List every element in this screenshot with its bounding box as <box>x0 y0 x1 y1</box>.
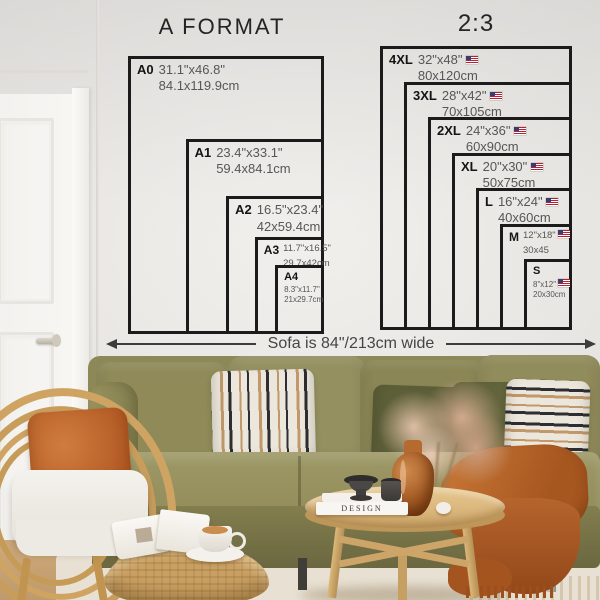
size-name: 3XL <box>413 88 437 104</box>
size-cm: 21x29.7cm <box>284 295 323 305</box>
a-format-title: A FORMAT <box>112 14 332 40</box>
size-label: 4XL32"x48" 80x120cm <box>389 52 478 85</box>
size-cm: 30x45 <box>523 245 570 257</box>
dimension-line-right <box>446 343 585 345</box>
size-label: M12"x18" 30x45 <box>509 230 570 257</box>
size-name: A4 <box>284 271 298 283</box>
size-name: L <box>485 194 493 210</box>
poster-size-guide-image: DESIGN A FORMAT 2:3 A031.1"x46.8"84.1x11… <box>0 0 600 600</box>
size-inches: 24"x36" <box>466 123 526 139</box>
dimension-line-left <box>117 343 256 345</box>
size-label: A48.3"x11.7"21x29.7cm <box>284 271 323 306</box>
size-name: A1 <box>195 145 212 161</box>
coffee-surface <box>202 526 228 534</box>
book-spine-title: DESIGN <box>341 504 382 513</box>
size-name: XL <box>461 159 478 175</box>
open-book-photo <box>135 527 153 543</box>
size-inches: 16.5"x23.4" <box>257 202 323 218</box>
door-panel-upper <box>0 118 54 304</box>
door-handle-base <box>52 334 61 347</box>
size-name: 2XL <box>437 123 461 139</box>
sofa-width-dimension: Sofa is 84"/213cm wide <box>106 335 596 353</box>
size-rect-s: S8"x12" 20x30cm <box>524 259 572 330</box>
pedestal-bowl-foot <box>350 495 372 501</box>
us-flag-icon <box>546 198 558 206</box>
us-flag-icon <box>514 127 526 135</box>
wall-molding <box>96 0 99 366</box>
decor-egg <box>436 502 451 514</box>
a-format-diagram: A031.1"x46.8"84.1x119.9cmA123.4"x33.1"59… <box>128 56 324 334</box>
size-inches: 28"x42" <box>442 88 502 104</box>
arrow-right-icon <box>585 339 596 349</box>
size-cm: 59.4x84.1cm <box>216 161 290 177</box>
size-cm: 84.1x119.9cm <box>159 78 240 94</box>
size-inches: 8.3"x11.7" <box>284 285 323 295</box>
ratio-2-3-title: 2:3 <box>380 10 572 38</box>
arrow-left-icon <box>106 339 117 349</box>
sofa-width-label: Sofa is 84"/213cm wide <box>256 335 447 353</box>
size-name: S <box>533 265 540 277</box>
ratio-2-3-diagram: 4XL32"x48" 80x120cm3XL28"x42" 70x105cm2X… <box>380 46 572 330</box>
wall-molding-top <box>0 70 88 73</box>
us-flag-icon <box>490 92 502 100</box>
size-label: S8"x12" 20x30cm <box>533 265 570 301</box>
design-book: DESIGN <box>316 502 408 515</box>
us-flag-icon <box>558 230 570 238</box>
size-label: L16"x24" 40x60cm <box>485 194 558 227</box>
size-label: A123.4"x33.1"59.4x84.1cm <box>195 145 291 178</box>
dark-cup <box>381 481 401 501</box>
size-name: M <box>509 230 519 245</box>
size-inches: 16"x24" <box>498 194 558 210</box>
size-cm: 42x59.4cm <box>257 219 323 235</box>
size-rect-a4: A48.3"x11.7"21x29.7cm <box>275 265 324 334</box>
size-inches: 8"x12" <box>533 279 570 290</box>
size-name: A3 <box>264 243 279 258</box>
size-inches: 31.1"x46.8" <box>159 62 240 78</box>
size-inches: 20"x30" <box>483 159 543 175</box>
size-label: A031.1"x46.8"84.1x119.9cm <box>137 62 239 95</box>
size-cm: 20x30cm <box>533 290 570 300</box>
size-name: 4XL <box>389 52 413 68</box>
size-inches: 12"x18" <box>523 230 570 245</box>
size-label: XL20"x30" 50x75cm <box>461 159 543 192</box>
size-label: 2XL24"x36" 60x90cm <box>437 123 526 156</box>
sofa-leg <box>298 558 307 590</box>
size-name: A0 <box>137 62 154 78</box>
size-label: A216.5"x23.4"42x59.4cm <box>235 202 323 235</box>
size-label: 3XL28"x42" 70x105cm <box>413 88 502 121</box>
size-inches: 11.7"x16.5" <box>283 243 331 258</box>
us-flag-icon <box>531 163 543 171</box>
size-inches: 32"x48" <box>418 52 478 68</box>
size-name: A2 <box>235 202 252 218</box>
us-flag-icon <box>558 279 570 287</box>
size-inches: 23.4"x33.1" <box>216 145 290 161</box>
us-flag-icon <box>466 56 478 64</box>
